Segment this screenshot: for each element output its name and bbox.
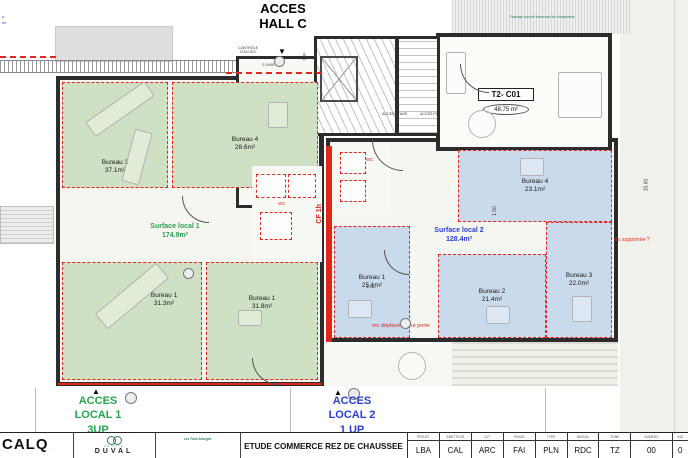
- paving-block-left: [0, 206, 54, 244]
- acces-local2-label: ACCES LOCAL 2 1 UP: [306, 394, 398, 437]
- room-name: Bureau 2: [479, 288, 505, 296]
- ref-value: 0: [673, 441, 688, 458]
- ref-header: NIVEAU: [568, 433, 599, 441]
- calq-subtext: · · · · · · · · · · · ·: [42, 441, 52, 450]
- ref-header: ZONE: [599, 433, 630, 441]
- elevator-shaft: [320, 56, 358, 102]
- surface-name: Surface local 2: [404, 226, 514, 235]
- fire-rating-label: CF 1h: [316, 204, 324, 223]
- acces-ph-label: ACCES PH: [420, 112, 438, 116]
- access-control-note: CONTRÔLE D'ACCES: [238, 46, 258, 55]
- ref-header: NUMERO: [631, 433, 671, 441]
- passage-note: Passage couvert traversant de chargement: [452, 0, 632, 34]
- dim-150-horizontal: 1.50: [366, 284, 376, 290]
- corner-note-line2: rie: [2, 20, 6, 26]
- furniture-desk: [520, 158, 544, 176]
- room-area: 28.6m²: [232, 144, 258, 152]
- furniture-desk: [572, 296, 592, 322]
- acces-etage-label: ACCES ETAGE: [382, 112, 407, 116]
- calq-sub-line2: · · · · · ·: [42, 446, 52, 451]
- ref-col-ind: IND 0: [673, 433, 688, 458]
- ref-header: EMETTEUR: [440, 433, 471, 441]
- survey-line: [35, 388, 36, 432]
- fire-wall: [326, 146, 332, 342]
- room-local2-bureau2: Bureau 2 21.4m²: [438, 254, 546, 338]
- duval-logo-block: GROUPE DUVAL: [73, 433, 155, 458]
- room-name: Bureau 1: [359, 274, 385, 282]
- ref-col-numero: NUMERO 00: [631, 433, 672, 458]
- ref-header: IND: [673, 433, 688, 441]
- sidewalk-right: [620, 0, 688, 432]
- ref-col-niveau: NIVEAU RDC: [568, 433, 600, 458]
- title-block: CALQ · · · · · · · · · · · · GROUPE DUVA…: [0, 432, 688, 458]
- ref-col-type: TYPE PLN: [536, 433, 568, 458]
- room-area: 23.1m²: [522, 186, 548, 194]
- duval-name: DUVAL: [73, 448, 155, 455]
- dim-180: 1.80: [301, 53, 306, 61]
- room-local1-bureau1: Bureau 1 31.3m²: [62, 262, 202, 380]
- surface-area: 174.9m²: [110, 231, 240, 240]
- dim-20405: 2.0405: [262, 62, 274, 67]
- crosswalk-paving: [452, 342, 618, 386]
- project-address: Les Trois Allorges · · · · · · · · · · ·…: [155, 437, 240, 450]
- acces-local2-line1: ACCES: [333, 394, 372, 408]
- badge-reader-icon: [400, 318, 411, 329]
- ref-value: FAI: [504, 441, 535, 458]
- note-mc-supprimee: mc supprimée ?: [614, 238, 650, 244]
- surface-name: Surface local 1: [110, 222, 240, 231]
- sidewalk-edge-line: [674, 0, 675, 432]
- drawing-reference-table: PROJET LBA EMETTEUR CAL LOT ARC PHASE FA…: [407, 433, 688, 458]
- surface-local2-label: Surface local 2 128.4m²: [404, 226, 514, 245]
- drawing-title: ETUDE COMMERCE REZ DE CHAUSSEE: [240, 433, 407, 458]
- acces-local2-line2: LOCAL 2: [329, 408, 376, 422]
- room-name: Bureau 4: [232, 136, 258, 144]
- furniture-desk: [348, 300, 372, 318]
- furniture-desk: [238, 310, 262, 326]
- address-line3: · · · · · ·: [155, 446, 240, 450]
- wc-box: [256, 174, 286, 198]
- ref-col-zone: ZONE TZ: [599, 433, 631, 458]
- wc-area-local1: WC: [252, 166, 322, 262]
- corner-note: s rie: [2, 14, 6, 25]
- acces-local1-line2: LOCAL 1: [75, 408, 122, 422]
- wc-label: WC: [278, 202, 286, 207]
- wc-box: [340, 180, 366, 202]
- mod-dash-top: [226, 72, 322, 74]
- ref-value: TZ: [599, 441, 630, 458]
- duval-logo-icon: [73, 435, 155, 445]
- acces-hall-header: ACCES HALL C: [224, 2, 342, 32]
- ref-header: TYPE: [536, 433, 567, 441]
- badge-reader-icon: [183, 268, 194, 279]
- ref-value: 00: [631, 441, 671, 458]
- badge-reader-icon: [274, 56, 285, 67]
- survey-line: [545, 388, 546, 432]
- acces-local1-label: ACCES LOCAL 1 3UP: [52, 394, 144, 437]
- ref-header: PROJET: [408, 433, 439, 441]
- furniture-desk: [268, 102, 288, 128]
- surface-local1-label: Surface local 1 174.9m²: [110, 222, 240, 241]
- room-name: Bureau 4: [522, 178, 548, 186]
- stair-flight: [396, 36, 440, 136]
- furniture-bed: [558, 72, 602, 118]
- wc-box: [288, 174, 316, 198]
- paving-block-topleft: [55, 26, 173, 62]
- room-area: 22.0m²: [566, 280, 592, 288]
- room-name: Bureau 3: [566, 272, 592, 280]
- sidewalk-ticks-top: [0, 60, 236, 73]
- calq-sub-line1: · · · · · ·: [42, 441, 52, 446]
- acces-local1-line1: ACCES: [79, 394, 118, 408]
- ref-value: PLN: [536, 441, 567, 458]
- dim-150-vertical: 1.50: [492, 206, 498, 216]
- dim-1560: 15.60: [643, 179, 649, 192]
- ref-value: CAL: [440, 441, 471, 458]
- ref-col-emetteur: EMETTEUR CAL: [440, 433, 472, 458]
- down-arrow-icon: ▼: [278, 48, 286, 56]
- furniture-desk: [486, 306, 510, 324]
- room-name: Bureau 1: [249, 295, 275, 303]
- ref-header: PHASE: [504, 433, 535, 441]
- ref-value: RDC: [568, 441, 599, 458]
- facade-mod-line: [58, 383, 322, 385]
- room-name: Bureau 1: [151, 292, 177, 300]
- room-local2-bureau1: Bureau 1 25.1m²: [334, 226, 410, 338]
- ref-value: ARC: [472, 441, 503, 458]
- ref-col-phase: PHASE FAI: [504, 433, 536, 458]
- wc-box: [260, 212, 292, 240]
- wc-label: WC: [366, 158, 374, 163]
- ref-header: LOT: [472, 433, 503, 441]
- wc-box: [340, 152, 366, 174]
- ref-col-projet: PROJET LBA: [408, 433, 440, 458]
- surface-area: 128.4m²: [404, 235, 514, 244]
- survey-line: [290, 388, 291, 432]
- acces-hall-line2: HALL C: [224, 17, 342, 32]
- ref-value: LBA: [408, 441, 439, 458]
- floor-plan-sheet: Passage couvert traversant de chargement…: [0, 0, 688, 458]
- furniture-table: [468, 110, 496, 138]
- acces-hall-line1: ACCES: [224, 2, 342, 17]
- mod-dash-topleft: [0, 56, 56, 58]
- room-area: 31.3m²: [151, 300, 177, 308]
- ref-col-lot: LOT ARC: [472, 433, 504, 458]
- room-area: 21.4m²: [479, 296, 505, 304]
- controle-line2: D'ACCES: [238, 50, 258, 54]
- tree-symbol: [398, 352, 426, 380]
- paving-bottom: [324, 344, 452, 386]
